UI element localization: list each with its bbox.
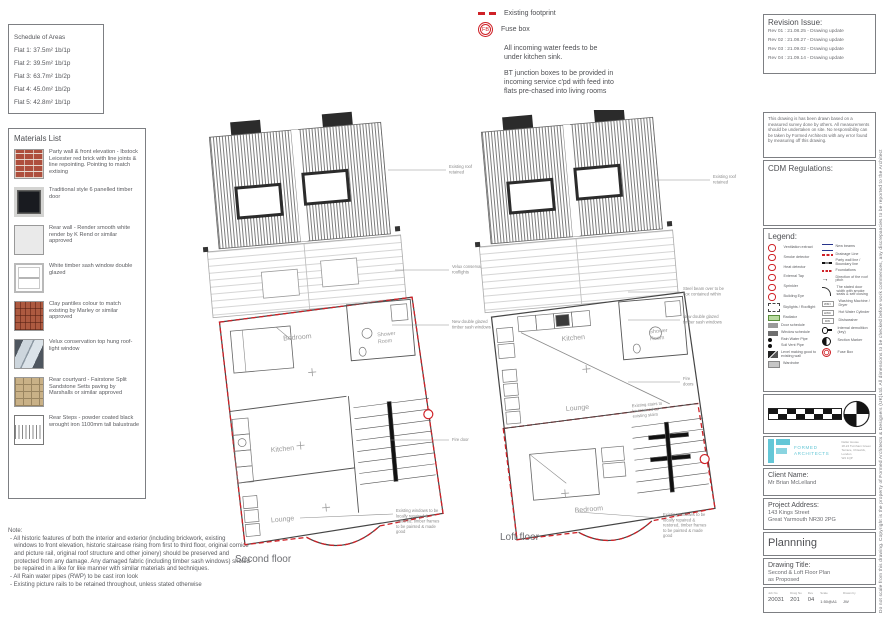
new-beams-icon [822, 244, 833, 251]
scale-bar-panel [763, 394, 876, 434]
drawing-title-line2: as Proposed [768, 577, 871, 584]
legend-label: Wardrobe [783, 362, 799, 366]
red-dash-icon [478, 12, 496, 15]
material-label: Rear Steps - powder coated black wrought… [49, 415, 140, 428]
firm-name: FORMED ARCHITECTS [794, 445, 829, 457]
client-title: Client Name: [768, 472, 871, 479]
legend-label: Hot Water Cylinder [839, 311, 870, 315]
material-item: White timber sash window double glazed [14, 263, 140, 293]
north-arrow-icon [842, 399, 871, 429]
job-number: Job No 20031 [768, 591, 784, 609]
door-schedule-icon [768, 323, 778, 328]
loft-floor-caption: Loft floor [500, 532, 540, 543]
material-label: Clay pantiles colour to match existing b… [49, 301, 140, 321]
legend-label: Rain Water Pipe [781, 338, 808, 342]
section-marker-icon [822, 337, 831, 346]
rooflight [575, 165, 621, 199]
legend-label: Foundations [836, 269, 856, 273]
existing-footprint-label: Existing footprint [504, 10, 556, 17]
clay-pantiles-image [14, 301, 44, 331]
legend-label: Sprinkler [784, 285, 799, 289]
scale-bar [768, 408, 842, 420]
annotation-windows: New double glazedtimber sash windows [452, 319, 491, 329]
rooflight [303, 170, 349, 204]
heat-detector-icon [768, 264, 776, 272]
drawing-title-line1: Second & Loft Floor Plan [768, 570, 871, 577]
revision-row: Rev 01 : 21.08.25 - Drawing update [768, 27, 871, 36]
legend-title: Legend: [768, 232, 871, 241]
annotation-beam: Steel beam over to bebox contained withi… [683, 286, 725, 296]
wardrobe-icon [768, 361, 780, 368]
legend-label: Section Marker [838, 339, 863, 343]
drawing-number-label: Drwg No [790, 591, 802, 595]
ventilation-extract-icon [768, 244, 776, 252]
bed [530, 449, 600, 501]
material-label: Party wall & front elevation - Ibstock L… [49, 149, 140, 175]
note-bullet: - Existing picture rails to be retained … [8, 582, 250, 590]
materials-title: Materials List [14, 134, 140, 143]
client-name: Mr Brian McLelland [768, 480, 871, 487]
scale-value-text: 1:50@A1 [820, 599, 837, 604]
legend-label: The stated door width with smoke seals &… [837, 286, 872, 298]
note-bullet: - All Rain water pipes (RWP) to be cast … [8, 574, 250, 582]
annotation-bay-windows: Existing windows to belocally repaired &… [663, 512, 706, 538]
skylight-icon [768, 303, 780, 312]
legend-label: Internal demolition (key) [838, 327, 872, 335]
drawn-by: Drawn by JW [843, 591, 856, 609]
water-feed-note: All incoming water feeds to beunder kitc… [504, 44, 693, 62]
legend-right-column: New beams Drainage Line Party wall line … [822, 244, 872, 370]
legend-label: Direction of the roof pitch [836, 276, 872, 284]
legend-label: Soil Vent Pipe [781, 344, 804, 348]
fuse-box-symbol [700, 454, 710, 464]
legend-label: Door schedule [781, 324, 805, 328]
brick-swatch-image [14, 149, 44, 179]
schedule-of-areas-panel: Schedule of Areas Flat 1: 37.5m² 1b/1p F… [8, 24, 104, 114]
hot-water-cylinder-tag: HWC [822, 310, 834, 316]
schedule-flat-1: Flat 1: 37.5m² 1b/1p [14, 44, 98, 57]
material-item: Rear Steps - powder coated black wrought… [14, 415, 140, 445]
schedule-title: Schedule of Areas [14, 31, 98, 44]
existing-footprint-key: Existing footprint [478, 10, 693, 17]
loft-floor-plan: Kitchen Shower Room Lounge Bedroom Exist… [464, 110, 717, 550]
cdm-title: CDM Regulations: [768, 164, 871, 173]
revision-number-label: Rev [808, 591, 814, 595]
survey-disclaimer: This drawing is has been drawn based on … [763, 112, 876, 158]
rooflight [236, 184, 282, 218]
legend-label: Smoke detector [784, 256, 810, 260]
door-swing-icon [822, 287, 831, 296]
legend-label: Dishwasher [839, 319, 858, 323]
revision-issue-panel: Revision Issue: Rev 01 : 21.08.25 - Draw… [763, 14, 876, 74]
making-good-icon [768, 351, 778, 358]
drawn-by-label: Drawn by [843, 591, 856, 595]
revision-number-value: 04 [808, 597, 814, 603]
scale-value: Scale 1:50@A1 [820, 591, 837, 609]
legend-label: Drainage Line [836, 253, 859, 257]
demolition-key-icon [822, 327, 829, 334]
revision-row: Rev 04 : 21.09.14 - Drawing update [768, 54, 871, 63]
schedule-flat-4: Flat 4: 45.0m² 1b/2p [14, 83, 98, 96]
cdm-regulations-panel: CDM Regulations: [763, 160, 876, 226]
title-block: Revision Issue: Rev 01 : 21.08.25 - Draw… [763, 10, 876, 614]
project-address-panel: Project Address: 143 Kings Street Great … [763, 498, 876, 530]
rooflight [508, 179, 554, 213]
legend-label: Fuse Box [838, 351, 854, 355]
architectural-drawing-sheet: { "schedule": { "title": "Schedule of Ar… [0, 0, 886, 621]
fuse-box-symbol [423, 409, 433, 419]
drawing-title-panel: Drawing Title: Second & Loft Floor Plan … [763, 558, 876, 585]
firm-logo-panel: FORMED ARCHITECTS Deller House18-24 Turn… [763, 436, 876, 466]
soil-vent-pipe-icon [768, 344, 772, 348]
annotation-bay-windows: Existing windows to belocally repaired &… [396, 508, 439, 534]
materials-list-panel: Materials List Party wall & front elevat… [8, 128, 146, 499]
firm-name-line2: ARCHITECTS [794, 451, 829, 457]
material-label: Rear courtyard - Fairstone Split Sandsto… [49, 377, 140, 397]
scale-label: Scale [820, 591, 837, 595]
client-name-panel: Client Name: Mr Brian McLelland [763, 468, 876, 496]
fuse-box-label: Fuse box [501, 26, 530, 33]
floor-plans-drawing: Bedroom Shower Room Kitchen Lounge Exist… [150, 110, 765, 575]
legend-label: Party wall line / Boundary line [836, 259, 872, 267]
fuse-box-icon: FB [478, 22, 493, 37]
legend-label: Washing Machine / Dryer [839, 300, 872, 308]
external-tap-icon [768, 274, 776, 282]
legend-label: Radiator [783, 316, 797, 320]
bt-junction-note: BT junction boxes to be provided inincom… [504, 69, 693, 96]
dishwasher-tag: DW [822, 318, 834, 324]
legend-panel: Legend: Ventilation extract Smoke detect… [763, 228, 876, 392]
annotation-roof: Existing roofretained [713, 174, 737, 184]
legend-label: External Tap [784, 275, 804, 279]
schedule-flat-5: Flat 5: 42.8m² 1b/1p [14, 96, 98, 109]
sprinkler-icon [768, 284, 776, 292]
window-schedule-icon [768, 331, 778, 336]
firm-address: Deller House18-24 Turnham GreenTerrace, … [841, 441, 871, 460]
sandstone-setts-image [14, 377, 44, 407]
second-floor-caption: Second floor [235, 554, 292, 565]
balustrade-image [14, 415, 44, 445]
legend-label: New beams [836, 245, 855, 249]
planning-stage: Plannning [763, 532, 876, 556]
legend-label: Heat detector [784, 266, 806, 270]
legend-left-column: Ventilation extract Smoke detector Heat … [768, 244, 818, 370]
velux-rooflight-image [14, 339, 44, 369]
washing-machine-tag: WM / [822, 301, 834, 307]
bed [230, 326, 293, 373]
drawn-by-value: JW [843, 599, 856, 604]
legend-label: Building Eye [784, 295, 805, 299]
schedule-flat-2: Flat 2: 39.5m² 1b/1p [14, 57, 98, 70]
material-item: Traditional style 6 panelled timber door [14, 187, 140, 217]
building-eye-icon [768, 293, 776, 301]
material-item: Party wall & front elevation - Ibstock L… [14, 149, 140, 179]
drawing-number-value: 201 [790, 597, 802, 603]
revision-title: Revision Issue: [768, 18, 871, 27]
foundations-line-icon [822, 270, 833, 272]
schedule-flat-3: Flat 3: 63.7m² 1b/2p [14, 70, 98, 83]
rain-water-pipe-icon [768, 338, 772, 342]
white-render-swatch-image [14, 225, 44, 255]
second-floor-plan: Bedroom Shower Room Kitchen Lounge [192, 110, 445, 555]
material-label: Velux conservation top hung roof- light … [49, 339, 140, 352]
radiator-icon [768, 315, 780, 321]
rooflight [261, 269, 299, 298]
material-item: Velux conservation top hung roof- light … [14, 339, 140, 369]
smoke-detector-icon [768, 254, 776, 262]
revision-row: Rev 02 : 21.08.27 - Drawing update [768, 36, 871, 45]
project-address-line2: Great Yarmouth NR30 2PG [768, 517, 871, 524]
fuse-box-key: FB Fuse box [478, 22, 693, 37]
revision-number: Rev 04 [808, 591, 814, 609]
material-label: White timber sash window double glazed [49, 263, 140, 276]
annotation-windows: New double glazedtimber sash windows [683, 314, 722, 324]
fuse-box-legend-icon [822, 348, 831, 357]
timber-door-image [14, 187, 44, 217]
material-item: Clay pantiles colour to match existing b… [14, 301, 140, 331]
material-label: Rear wall - Render smooth white render b… [49, 225, 140, 245]
formed-architects-logo-icon [768, 439, 790, 463]
revision-row: Rev 03 : 21.09.02 - Drawing update [768, 45, 871, 54]
project-title: Project Address: [768, 502, 871, 509]
sash-window-image [14, 263, 44, 293]
legend-label: Level making good to existing wall [781, 351, 818, 359]
annotation-fire-door: Fire door [452, 437, 469, 442]
material-item: Rear courtyard - Fairstone Split Sandsto… [14, 377, 140, 407]
legend-label: Window schedule [781, 331, 810, 335]
party-wall-line-icon [822, 262, 833, 264]
material-item: Rear wall - Render smooth white render b… [14, 225, 140, 255]
project-address-line1: 143 Kings Street [768, 510, 871, 517]
key-notes: Existing footprint FB Fuse box All incom… [478, 10, 693, 96]
legend-label: Ventilation extract [784, 246, 813, 250]
drawing-meta-strip: Job No 20031 Drwg No 201 Rev 04 Scale 1:… [763, 587, 876, 613]
roof-pitch-arrow-icon: → [822, 276, 833, 283]
job-number-value: 20031 [768, 597, 784, 603]
annotation-roof: Existing roofretained [449, 164, 473, 174]
drawing-number: Drwg No 201 [790, 591, 802, 609]
copyright-edge-text: Do not scale from this drawing. Copyrigh… [879, 13, 884, 613]
legend-label: Skylights / Rooflight [783, 306, 815, 310]
job-number-label: Job No [768, 591, 784, 595]
material-label: Traditional style 6 panelled timber door [49, 187, 140, 200]
drainage-line-icon [822, 254, 833, 256]
drawing-title-label: Drawing Title: [768, 562, 871, 569]
rooflight [321, 258, 359, 287]
